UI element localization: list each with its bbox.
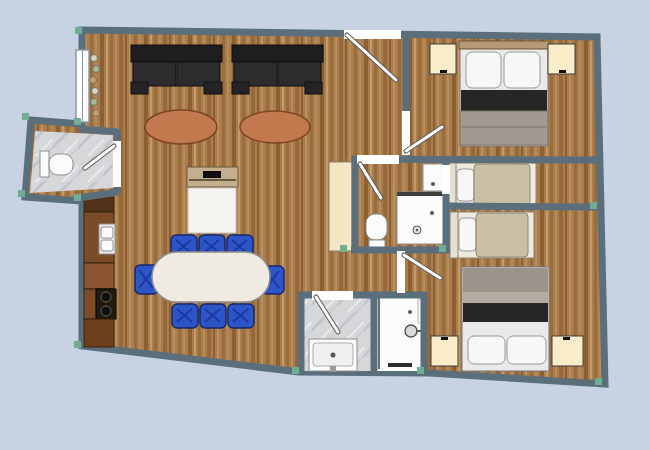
wall-tick-shower-se [417,367,424,374]
bed-a-blanket-fold [461,90,547,111]
windowsill-plant-3 [90,77,97,84]
bed-b-blanket [474,164,530,206]
tv-area-mat [188,188,236,233]
ensuite-sink [423,164,443,191]
windowsill-plant-4 [92,88,99,95]
bed-c-headboard [450,212,458,258]
windowsill-plant-1 [91,55,98,62]
windowsill-plant-5 [91,99,98,106]
bed-d-pillow-left [468,336,505,364]
bed-c-blanket [476,213,528,257]
wall-tick-ensuite-se [439,245,446,252]
sofa-1-armrest-left [131,82,148,94]
sofa-2-armrest-left [232,82,249,94]
wall-tick-bath-tl-ne [74,118,81,125]
stove-burner-1 [101,292,111,302]
windowsill-plant-6 [93,110,100,117]
nightstand-d-left [431,336,458,366]
wall-tick-bath-tl-nw [22,113,29,120]
bed-d-blanket-top [463,268,548,292]
nightstand-d-left-handle [441,337,448,340]
sofa-1-back [131,45,222,62]
bottom-bath-vanity-faucet [331,353,336,358]
kitchen-sink-basin-lower [101,240,113,251]
bed-a-blanket [460,111,548,145]
nightstand-a-left [430,44,456,74]
coffee-table-oval-2 [240,111,310,143]
stove-burner-2 [101,306,111,316]
nightstand-d-right [552,336,583,366]
dining-table [152,252,270,302]
wall-tick-top-left [75,27,82,34]
wall-tick-kitchen-sw [74,341,81,348]
bed-a-headboard [459,41,549,49]
bed-d-blanket-band [463,292,548,303]
ensuite-shower [397,192,444,244]
bed-c-pillow [459,218,476,251]
wall-tick-divider-east [590,202,597,209]
windowsill-plant-2 [93,66,100,73]
floor-plan [0,0,650,450]
shower-room-valve [408,310,412,314]
shower-room-head [405,325,417,337]
floor-plan-svg [0,0,650,450]
tv-screen [203,171,221,178]
door-gap-ensuite [357,155,399,164]
kitchen-counter-bottom-section [84,319,114,347]
ensuite-shower-glass [397,192,444,196]
bed-b-pillow [457,169,474,201]
ensuite-toilet-bowl [366,214,387,240]
nightstand-d-right-handle [563,337,570,340]
kitchen-counter-mid-section [84,263,114,289]
wall-tick-ensuite-sw [340,245,347,252]
nightstand-a-right [548,44,575,74]
ensuite-shower-control [430,211,434,215]
wall-bath-tl-jog-north [79,129,118,132]
door-gap-single-room [442,165,450,194]
sofa-2-armrest-right [305,82,322,94]
nightstand-a-right-handle [559,70,566,73]
wall-single-rooms-divider [447,206,599,207]
bed-d-blanket-fold [463,303,548,322]
bed-d-pillow-right [507,336,546,364]
shower-room-door-track [388,363,412,367]
wall-tick-bath-tl-sw [18,190,25,197]
sofa-2-back [232,45,323,62]
bath-tl-toilet-tank [40,151,49,177]
nightstand-a-left-handle [440,70,447,73]
wall-tick-bottom-bath-sw [292,367,299,374]
wall-tick-bath-tl-se [74,194,81,201]
ensuite-shower-drain-dot [416,229,418,231]
wall-tick-bottom-right [595,378,602,385]
bottom-bath-vanity-pedestal [330,366,336,372]
ensuite-sink-faucet [431,182,435,186]
bed-a-pillow-right [504,52,540,88]
sofa-1-armrest-right [204,82,222,94]
bath-tl-toilet-bowl [49,154,73,175]
kitchen-sink-basin-upper [101,227,113,238]
bed-a-pillow-left [466,52,501,88]
hall-wardrobe [329,162,352,251]
coffee-table-oval-1 [145,110,217,144]
